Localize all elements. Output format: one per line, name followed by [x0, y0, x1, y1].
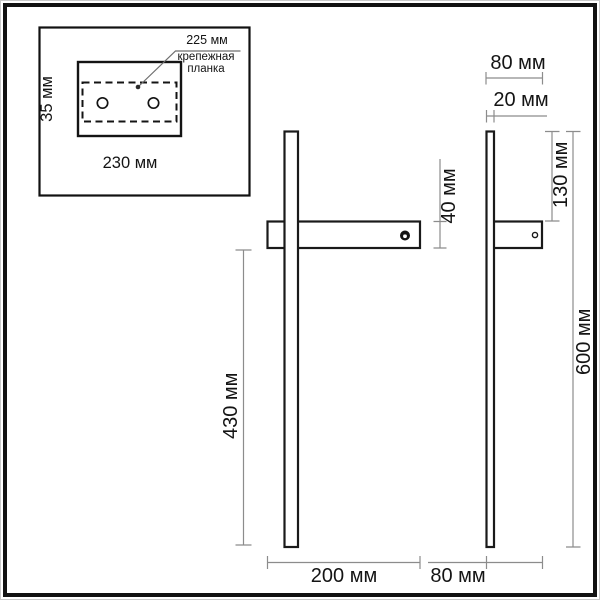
mounting-hole-left — [97, 98, 107, 108]
dim-label-strip-width: 225 мм — [173, 34, 241, 47]
mounting-strip-caption-line2: планка — [168, 63, 244, 75]
side-rod — [487, 132, 495, 548]
screw-icon — [400, 231, 410, 241]
dim-label-upper-rod: 130 мм — [551, 144, 571, 208]
dim-label-depth-bottom: 80 мм — [422, 566, 494, 586]
dim-label-bracket-height: 40 мм — [439, 164, 459, 228]
side-screw-hole — [532, 232, 537, 237]
dim-label-total-height: 600 мм — [574, 311, 594, 375]
dim-label-plate-width: 230 мм — [90, 155, 170, 172]
dim-label-bracket-width: 200 мм — [294, 566, 394, 586]
mounting-strip-caption: крепежная планка — [168, 51, 244, 75]
dim-line-20 — [487, 110, 548, 123]
leader-dot — [136, 85, 141, 90]
mounting-hole-right — [148, 98, 158, 108]
dim-label-rod-depth: 20 мм — [485, 90, 557, 110]
dim-label-rod-length: 430 мм — [221, 375, 241, 439]
front-rod — [285, 132, 299, 548]
dim-label-depth-top: 80 мм — [482, 53, 554, 73]
mounting-plate-outline — [78, 62, 181, 136]
lamp-dimension-drawing: 225 мм крепежная планка 35 мм 230 мм 80 … — [0, 0, 600, 600]
dim-label-plate-height: 35 мм — [39, 73, 55, 125]
mounting-strip-caption-line1: крепежная — [168, 51, 244, 63]
